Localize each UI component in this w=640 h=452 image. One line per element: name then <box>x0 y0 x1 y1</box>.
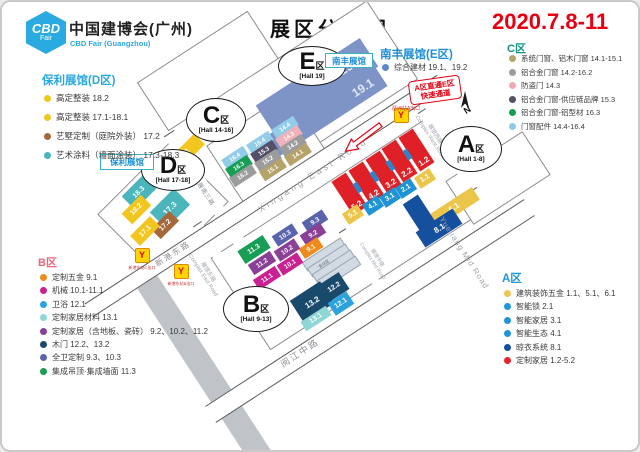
legend-item-label: 综合建材 19.1、19.2 <box>394 62 467 73</box>
metro-exit-label: 琶洲站A出口 <box>392 105 420 112</box>
legend-zone-e: 南丰展馆(E区)综合建材 19.1、19.2 <box>380 46 453 62</box>
legend-item-label: 全卫定制 9.3、10.3 <box>52 352 121 363</box>
legend-item-label: 晾衣系统 8.1 <box>516 342 561 353</box>
legend-title-e: 南丰展馆(E区) <box>380 46 453 62</box>
legend-item: 艺墅定制（庭院外装） 17.2 <box>44 130 160 142</box>
legend-item: 机械 10.1-11.1 <box>40 285 103 296</box>
legend-color-dot <box>504 303 511 310</box>
zone-letter: E区 <box>299 52 324 72</box>
legend-color-dot <box>509 96 516 103</box>
metro-exit-label: 新港东站C出口 <box>129 265 156 271</box>
metro-exit-label: 新港东站B出口 <box>168 281 195 287</box>
legend-item-label: 铝合金门窗 14.2-16.2 <box>521 67 592 78</box>
legend-title-b: B区 <box>38 254 57 270</box>
venue-tag-nanfeng: 南丰展馆 <box>325 53 373 68</box>
legend-item-label: 系统门窗、铝木门窗 14.1-15.1 <box>521 53 622 64</box>
zone-hall-range: [Hall 9-13] <box>240 316 271 323</box>
legend-item-label: 铝合金门窗-供应链品牌 15.3 <box>521 94 615 105</box>
zone-hall-range: [Hall 17-18] <box>156 177 191 184</box>
legend-color-dot <box>40 341 47 348</box>
zone-badge-a: A区 [Hall 1-8] <box>440 126 502 172</box>
legend-item: 高定整装 18.2 <box>44 92 109 104</box>
legend-item: 防盗门 14.3 <box>509 80 560 91</box>
legend-color-dot <box>40 368 47 375</box>
legend-item-label: 定制五金 9.1 <box>52 272 97 283</box>
legend-item-label: 智能生态 4.1 <box>516 328 561 339</box>
legend-color-dot <box>509 109 516 116</box>
legend-color-dot <box>44 133 51 140</box>
legend-color-dot <box>44 152 51 159</box>
legend-item-label: 高定整装 18.2 <box>56 92 109 104</box>
legend-color-dot <box>40 287 47 294</box>
zone-hall-range: [Hall 1-8] <box>457 156 484 163</box>
metro-icon: Y <box>135 248 150 263</box>
legend-color-dot <box>509 123 516 130</box>
legend-item: 建筑装饰五金 1.1、5.1、6.1 <box>504 288 616 299</box>
legend-color-dot <box>40 314 47 321</box>
zone-hall-range: [Hall 14-16] <box>199 127 234 134</box>
legend-item: 综合建材 19.1、19.2 <box>382 62 467 73</box>
legend-color-dot <box>509 55 516 62</box>
legend-title-a: A区 <box>502 270 522 286</box>
legend-item-label: 卫浴 12.1 <box>52 299 86 310</box>
legend-color-dot <box>509 69 516 76</box>
zone-letter: A区 <box>458 135 484 155</box>
metro-icon: Y <box>174 264 189 279</box>
legend-item: 全卫定制 9.3、10.3 <box>40 352 121 363</box>
zone-badge-c: C区 [Hall 14-16] <box>186 98 246 142</box>
legend-item-label: 机械 10.1-11.1 <box>52 285 103 296</box>
legend-item-label: 建筑装饰五金 1.1、5.1、6.1 <box>516 288 616 299</box>
legend-color-dot <box>40 301 47 308</box>
legend-color-dot <box>509 82 516 89</box>
legend-title-d: 保利展馆(D区) <box>42 72 115 88</box>
legend-item-label: 防盗门 14.3 <box>521 80 560 91</box>
zone-letter: B区 <box>243 295 269 315</box>
legend-item: 智能锁 2.1 <box>504 301 553 312</box>
legend-item-label: 定制家居 1.2-5.2 <box>516 355 575 366</box>
legend-color-dot <box>504 317 511 324</box>
zone-letter: C区 <box>203 106 229 126</box>
legend-color-dot <box>504 330 511 337</box>
legend-item-label: 智能家居 3.1 <box>516 315 561 326</box>
legend-zone-c: C区系统门窗、铝木门窗 14.1-15.1铝合金门窗 14.2-16.2防盗门 … <box>507 40 526 56</box>
legend-item-label: 木门 12.2、13.2 <box>52 339 109 350</box>
legend-color-dot <box>504 357 511 364</box>
legend-item: 系统门窗、铝木门窗 14.1-15.1 <box>509 53 622 64</box>
legend-item: 集成吊顶·集成墙面 11.3 <box>40 366 136 377</box>
legend-item: 智能生态 4.1 <box>504 328 561 339</box>
legend-color-dot <box>44 95 51 102</box>
legend-item-label: 定制家居材料 13.1 <box>52 312 118 323</box>
legend-item: 高定整装 17.1-18.1 <box>44 111 128 123</box>
legend-item: 晾衣系统 8.1 <box>504 342 561 353</box>
legend-item-label: 集成吊顶·集成墙面 11.3 <box>52 366 136 377</box>
legend-item-label: 门窗配件 14.4-16.4 <box>521 121 585 132</box>
legend-zone-d: 保利展馆(D区)高定整装 18.2高定整装 17.1-18.1艺墅定制（庭院外装… <box>42 72 115 88</box>
legend-color-dot <box>382 64 389 71</box>
legend-item-label: 艺术涂料（墙面涂装） 17.3-18.3 <box>56 149 179 161</box>
legend-color-dot <box>504 290 511 297</box>
legend-item-label: 定制家居（含地板、瓷砖） 9.2、10.2、11.2 <box>52 326 208 337</box>
zone-badge-b: B区 [Hall 9-13] <box>223 286 289 332</box>
legend-color-dot <box>504 344 511 351</box>
legend-color-dot <box>40 274 47 281</box>
legend-item: 定制五金 9.1 <box>40 272 97 283</box>
legend-item: 卫浴 12.1 <box>40 299 86 310</box>
legend-item: 定制家居材料 13.1 <box>40 312 118 323</box>
legend-color-dot <box>40 328 47 335</box>
legend-item: 智能家居 3.1 <box>504 315 561 326</box>
zone-hall-range: [Hall 19] <box>299 73 324 80</box>
legend-color-dot <box>44 114 51 121</box>
legend-color-dot <box>40 354 47 361</box>
legend-item-label: 艺墅定制（庭院外装） 17.2 <box>56 130 160 142</box>
exhibition-map-poster: CBD Fair 中国建博会(广州) CBD Fair (Guangzhou) … <box>0 0 640 452</box>
legend-item: 木门 12.2、13.2 <box>40 339 109 350</box>
legend-item: 铝合金门窗-供应链品牌 15.3 <box>509 94 615 105</box>
legend-item: 铝合金门窗-铝型材 16.3 <box>509 107 600 118</box>
legend-item-label: 高定整装 17.1-18.1 <box>56 111 128 123</box>
legend-item: 门窗配件 14.4-16.4 <box>509 121 585 132</box>
legend-item: 艺术涂料（墙面涂装） 17.3-18.3 <box>44 149 179 161</box>
legend-item: 定制家居 1.2-5.2 <box>504 355 575 366</box>
legend-item: 铝合金门窗 14.2-16.2 <box>509 67 592 78</box>
legend-zone-b: B区定制五金 9.1机械 10.1-11.1卫浴 12.1定制家居材料 13.1… <box>38 254 57 270</box>
legend-item-label: 铝合金门窗-铝型材 16.3 <box>521 107 600 118</box>
legend-item-label: 智能锁 2.1 <box>516 301 553 312</box>
legend-zone-a: A区建筑装饰五金 1.1、5.1、6.1智能锁 2.1智能家居 3.1智能生态 … <box>502 270 522 286</box>
legend-item: 定制家居（含地板、瓷砖） 9.2、10.2、11.2 <box>40 326 208 337</box>
